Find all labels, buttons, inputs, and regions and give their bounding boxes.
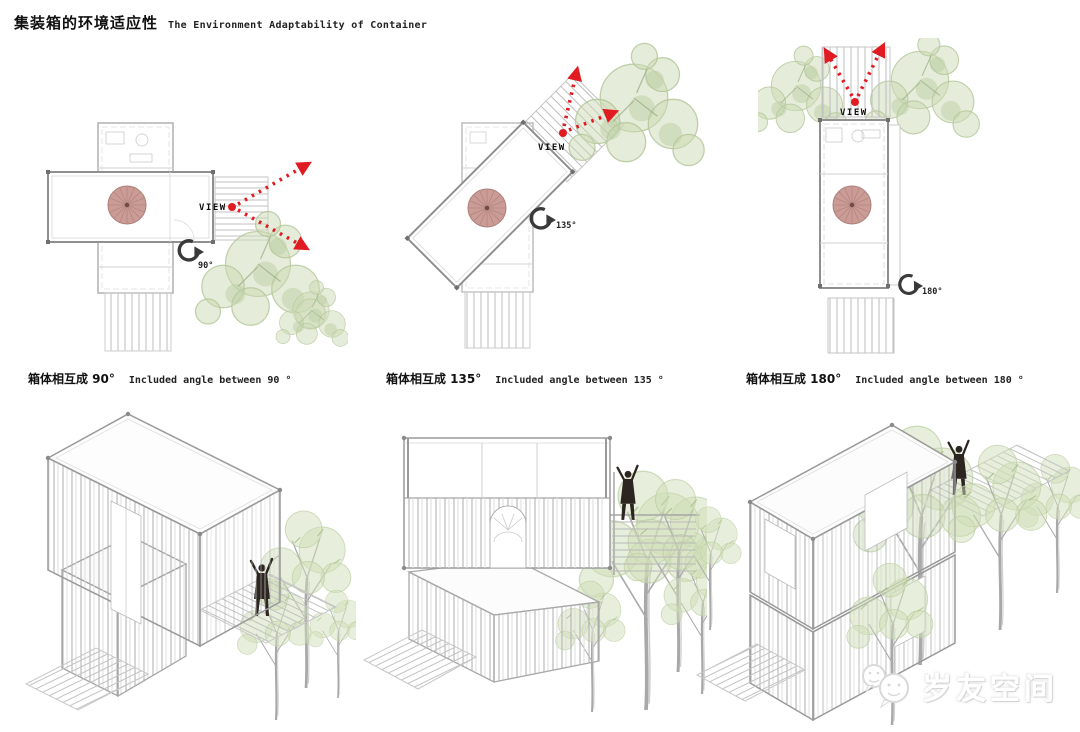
caption-en: Included angle between 90 ° [129,375,292,386]
wechat-logo-icon [860,660,916,712]
spiral-stair [468,189,506,227]
angle-label: 90° [198,261,213,271]
angle-label: 180° [922,287,942,297]
rotation-arrow-icon [179,241,204,260]
caption-en: Included angle between 180 ° [855,375,1024,386]
deck-plan [105,293,171,351]
deck-plan [465,292,530,348]
view-label: VIEW [199,203,227,213]
page-header: 集装箱的环境适应性 The Environment Adaptability o… [14,12,427,33]
tree-illustration [695,507,741,630]
view-label: VIEW [538,143,566,153]
watermark-brand: 岁友空间 [922,664,1058,708]
rotation-arrow-icon [900,275,923,293]
page-title: 集装箱的环境适应性 [14,12,158,33]
spiral-stair [108,186,146,224]
caption-zh: 箱体相互成 135° [386,370,481,387]
view-label: VIEW [840,108,868,118]
axon-drawing-90 [16,396,356,726]
deck-plan [822,47,890,117]
spiral-stair [833,186,871,224]
rotation-arrow-icon [531,209,556,228]
plan-diagram-180: VIEW 180° [758,38,1068,368]
axon-drawing-135 [362,410,707,725]
arched-door [490,506,526,568]
caption-zh: 箱体相互成 180° [746,370,841,387]
caption-135: 箱体相互成 135° Included angle between 135 ° [386,370,664,387]
angle-label: 135° [556,221,576,231]
deck-plan [828,298,894,353]
container-axon-upper [402,436,612,570]
caption-180: 箱体相互成 180° Included angle between 180 ° [746,370,1024,387]
page-title-en: The Environment Adaptability of Containe… [168,20,427,33]
tree-illustration [569,43,704,165]
caption-en: Included angle between 135 ° [495,375,664,386]
caption-90: 箱体相互成 90° Included angle between 90 ° [28,370,291,387]
caption-zh: 箱体相互成 90° [28,370,115,387]
plan-diagram-135: VIEW 135° [388,38,708,368]
watermark: 岁友空间 [860,650,1080,722]
plan-diagram-90: VIEW 90° [18,42,348,367]
